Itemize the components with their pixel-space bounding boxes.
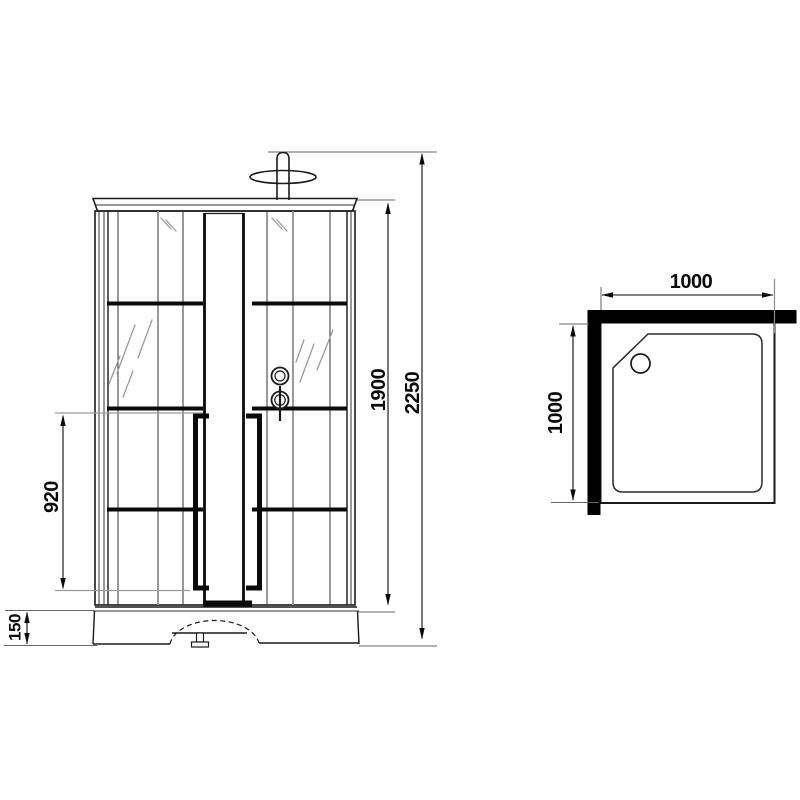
base-tray (93, 607, 359, 647)
dim-tray-height: 150 (4, 611, 97, 646)
shower-head (250, 152, 437, 200)
dim-handle-span: 920 (41, 413, 203, 591)
door-handle-left (196, 416, 210, 588)
dim-label-depth-1000: 1000 (545, 391, 567, 434)
shower-cabin-drawing: 1900 2250 920 150 (0, 0, 800, 800)
door-handle-right (246, 416, 260, 588)
door-bottom-rail (203, 601, 252, 607)
horizontal-bars (107, 302, 347, 512)
tray-cutout-arc (170, 620, 259, 644)
diverter-knob (272, 368, 289, 385)
adjustable-foot (172, 633, 247, 647)
shower-pipe (277, 153, 289, 201)
dim-label-width-1000: 1000 (670, 271, 713, 293)
dim-cabin-height: 1900 (357, 200, 395, 612)
dim-label-150: 150 (6, 614, 25, 641)
glass-hatch-marks (109, 218, 333, 397)
door-stiles (203, 213, 252, 607)
front-view: 1900 2250 920 150 (4, 152, 437, 647)
top-view: 1000 1000 (545, 271, 797, 515)
dim-label-1900: 1900 (368, 368, 390, 411)
shower-head-disc (250, 171, 316, 184)
dim-label-920: 920 (41, 481, 63, 513)
cabin-body (95, 211, 355, 607)
drawing-canvas: 1900 2250 920 150 (0, 0, 800, 800)
roof-cap (93, 199, 357, 212)
wall-panel-top (588, 310, 797, 324)
drain-hole (631, 354, 650, 373)
dim-label-2250: 2250 (402, 371, 424, 414)
wall-panel-left (588, 310, 601, 515)
faucet-controls (272, 368, 289, 422)
